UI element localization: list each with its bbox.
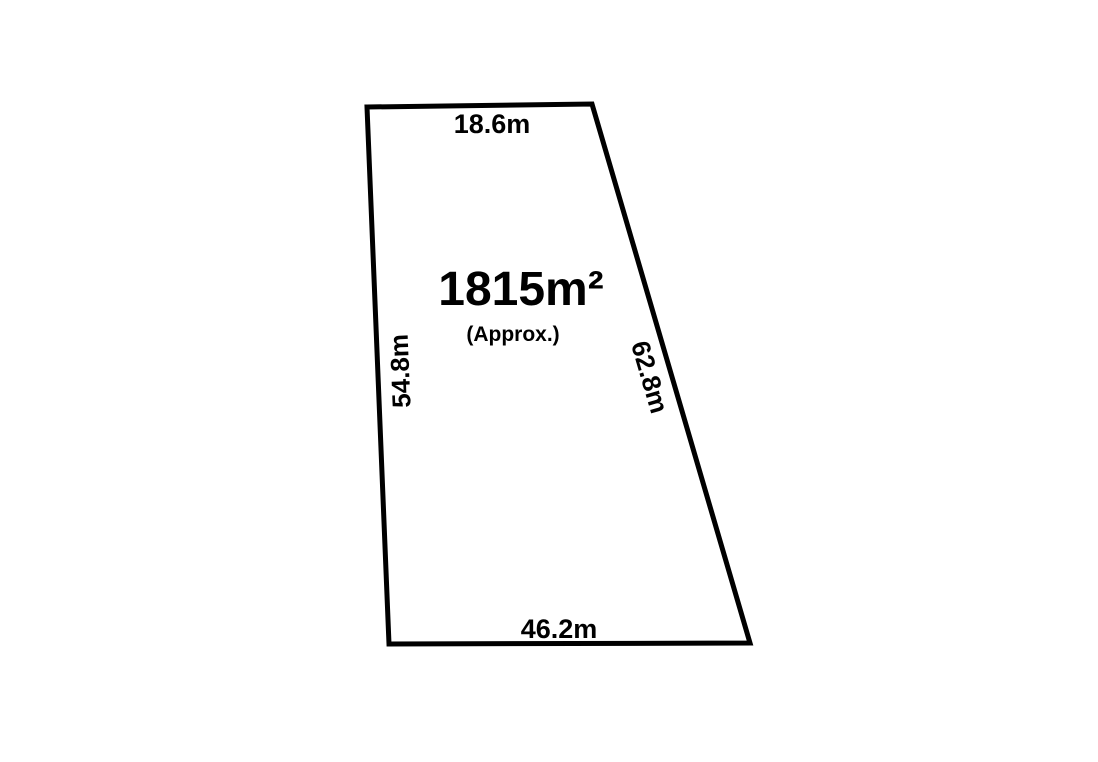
lot-plan-drawing: 18.6m 1815m² (Approx.) 54.8m 62.8m 46.2m: [0, 0, 1098, 762]
area-value-label: 1815m²: [438, 263, 603, 316]
dimension-label-left: 54.8m: [384, 334, 417, 409]
lot-plan-canvas: 18.6m 1815m² (Approx.) 54.8m 62.8m 46.2m: [0, 0, 1098, 762]
area-approx-note: (Approx.): [466, 323, 559, 346]
dimension-label-top: 18.6m: [454, 109, 531, 139]
dimension-label-bottom: 46.2m: [521, 614, 598, 644]
parcel-boundary: [367, 104, 750, 644]
